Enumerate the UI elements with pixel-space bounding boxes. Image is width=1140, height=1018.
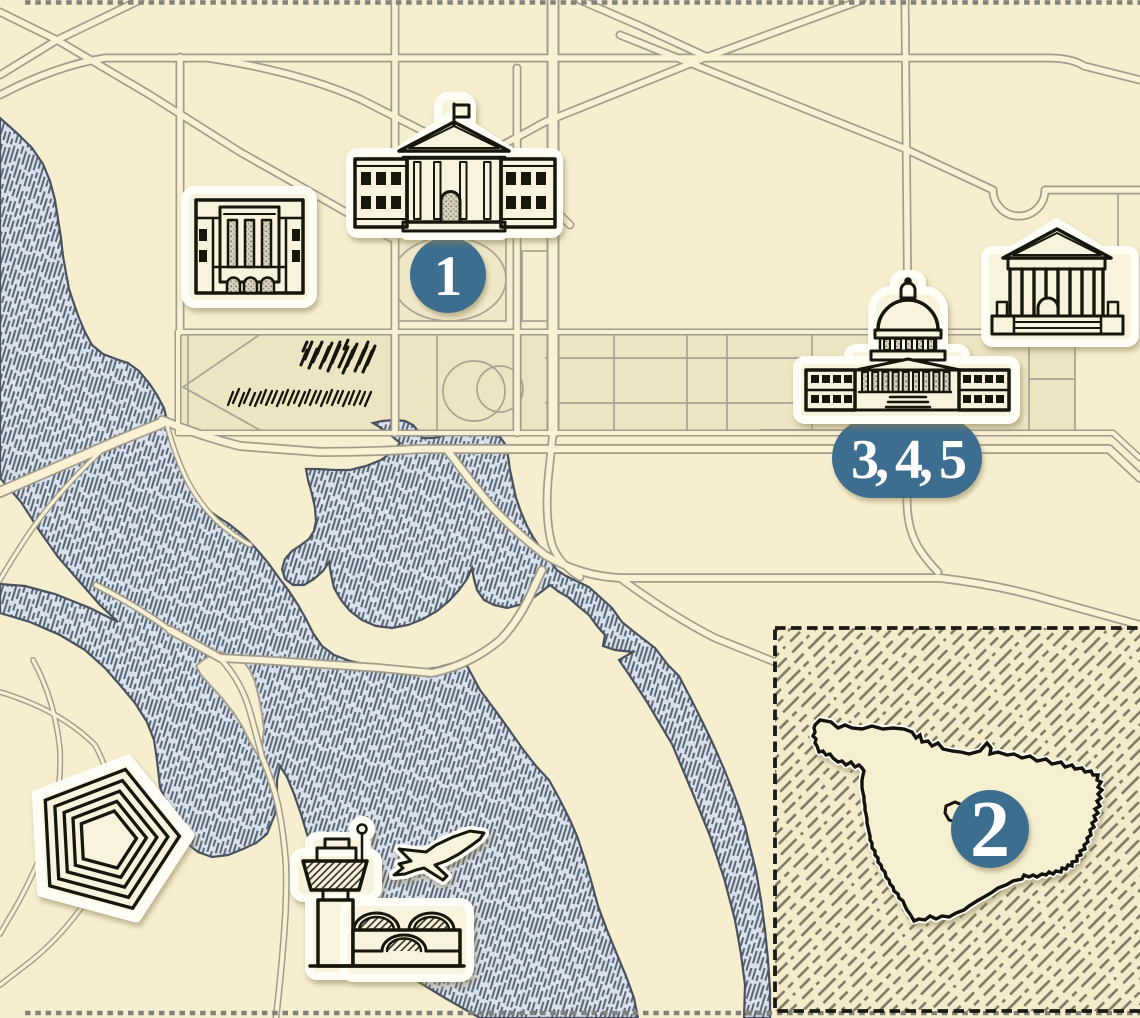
- svg-text:3, 4, 5: 3, 4, 5: [851, 429, 965, 491]
- svg-text:2: 2: [970, 786, 1010, 874]
- svg-text:1: 1: [434, 245, 463, 308]
